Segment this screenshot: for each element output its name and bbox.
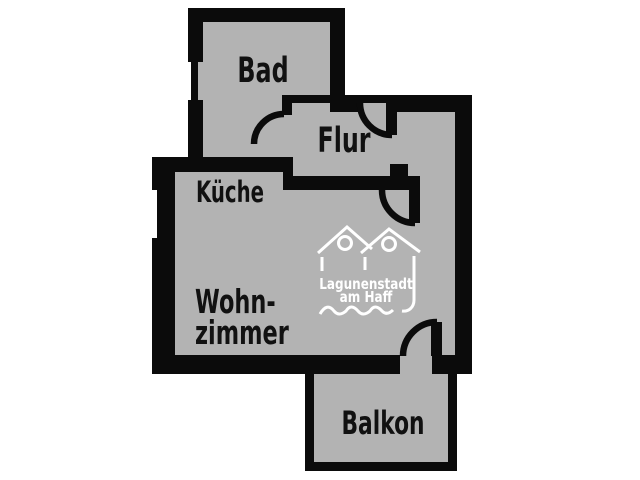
wave-icon [320,307,393,314]
logo-text-line2: am Haff [302,290,430,305]
right-house-window [383,238,396,251]
logo-layer [0,0,640,480]
floor-plan: Bad Flur Küche Wohn- zimmer Balkon Lagun… [0,0,640,480]
left-house-window [339,237,352,250]
